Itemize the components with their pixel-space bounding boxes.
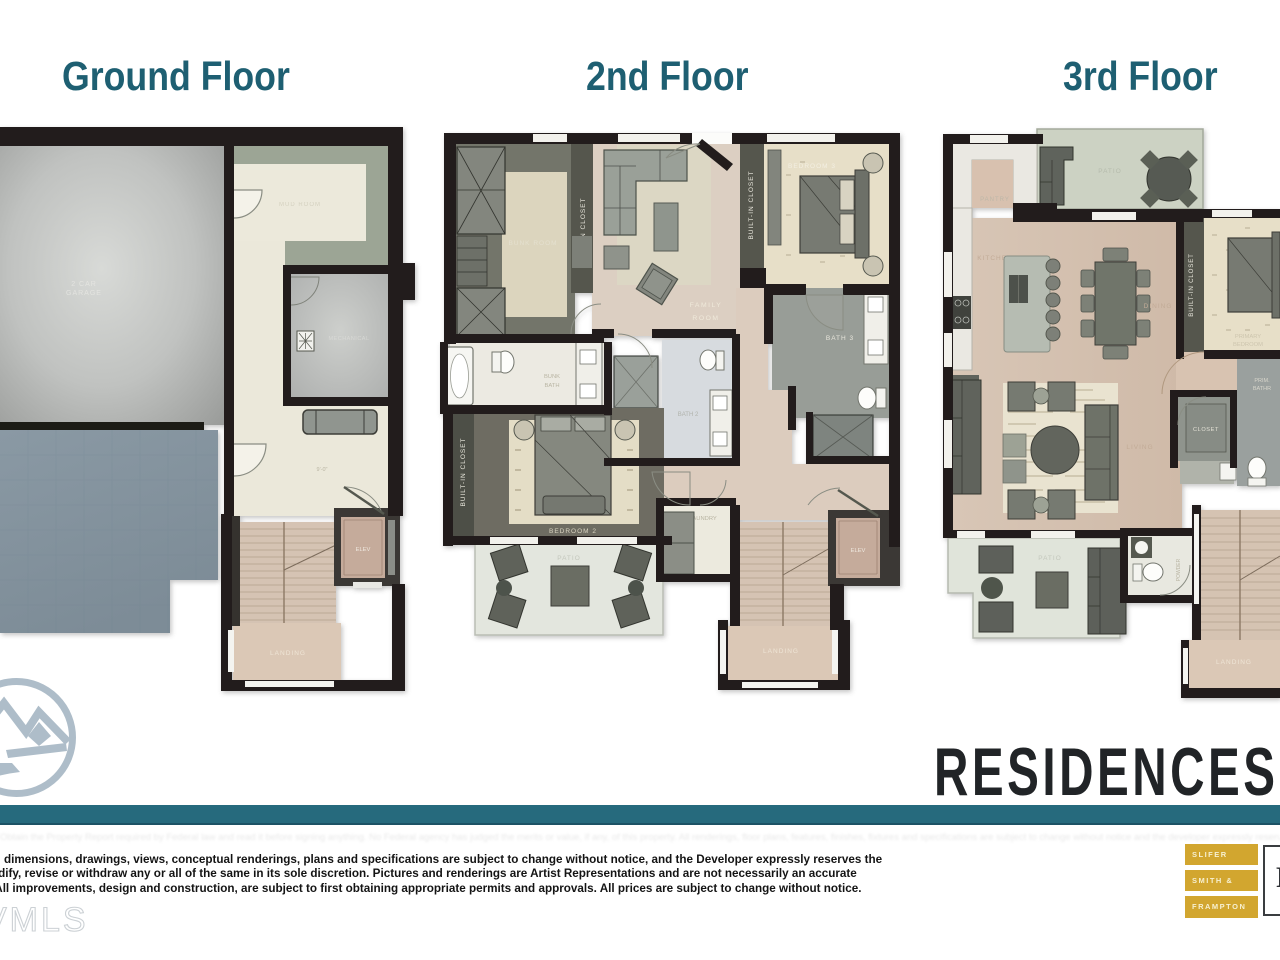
svg-text:2 CAR: 2 CAR	[71, 281, 97, 288]
svg-text:LANDING: LANDING	[270, 650, 306, 657]
svg-text:MUD ROOM: MUD ROOM	[279, 202, 321, 208]
svg-text:PANTRY: PANTRY	[980, 197, 1010, 203]
svg-text:MECHANICAL: MECHANICAL	[328, 336, 369, 342]
svg-text:PATIO: PATIO	[557, 555, 581, 562]
svg-text:9'-0": 9'-0"	[317, 467, 328, 473]
svg-text:BUNK ROOM: BUNK ROOM	[508, 240, 557, 247]
svg-text:FAMILY: FAMILY	[690, 302, 723, 309]
svg-text:BEDROOM: BEDROOM	[1233, 342, 1263, 348]
svg-text:BUILT-IN CLOSET: BUILT-IN CLOSET	[460, 437, 467, 506]
svg-text:BATH: BATH	[544, 383, 559, 389]
svg-text:GARAGE: GARAGE	[66, 290, 102, 297]
svg-text:POWDER: POWDER	[1176, 558, 1182, 581]
svg-text:BUILT-IN CLOSET: BUILT-IN CLOSET	[748, 170, 755, 239]
svg-text:PATIO: PATIO	[1038, 555, 1062, 562]
svg-text:PATIO: PATIO	[1098, 168, 1122, 175]
svg-text:PRIMARY: PRIMARY	[1235, 334, 1261, 340]
svg-text:ROOM: ROOM	[692, 315, 719, 322]
svg-text:LIVING: LIVING	[1126, 444, 1153, 451]
svg-text:BATH 2: BATH 2	[678, 412, 699, 418]
svg-text:BEDROOM 3: BEDROOM 3	[788, 163, 836, 170]
svg-text:ELEV: ELEV	[356, 547, 371, 553]
svg-text:BEDROOM 2: BEDROOM 2	[549, 528, 597, 535]
svg-text:CLOSET: CLOSET	[1193, 427, 1219, 433]
svg-text:LANDING: LANDING	[1216, 659, 1252, 666]
svg-text:BATH 3: BATH 3	[826, 335, 854, 342]
svg-text:ELEV: ELEV	[851, 548, 866, 554]
svg-text:LANDING: LANDING	[763, 648, 799, 655]
svg-text:BUILT-IN CLOSET: BUILT-IN CLOSET	[1188, 253, 1195, 316]
svg-text:BATHR: BATHR	[1253, 386, 1271, 392]
svg-text:DINING: DINING	[1144, 303, 1173, 310]
svg-text:BUNK: BUNK	[544, 374, 560, 380]
svg-text:PRIM.: PRIM.	[1254, 378, 1270, 384]
